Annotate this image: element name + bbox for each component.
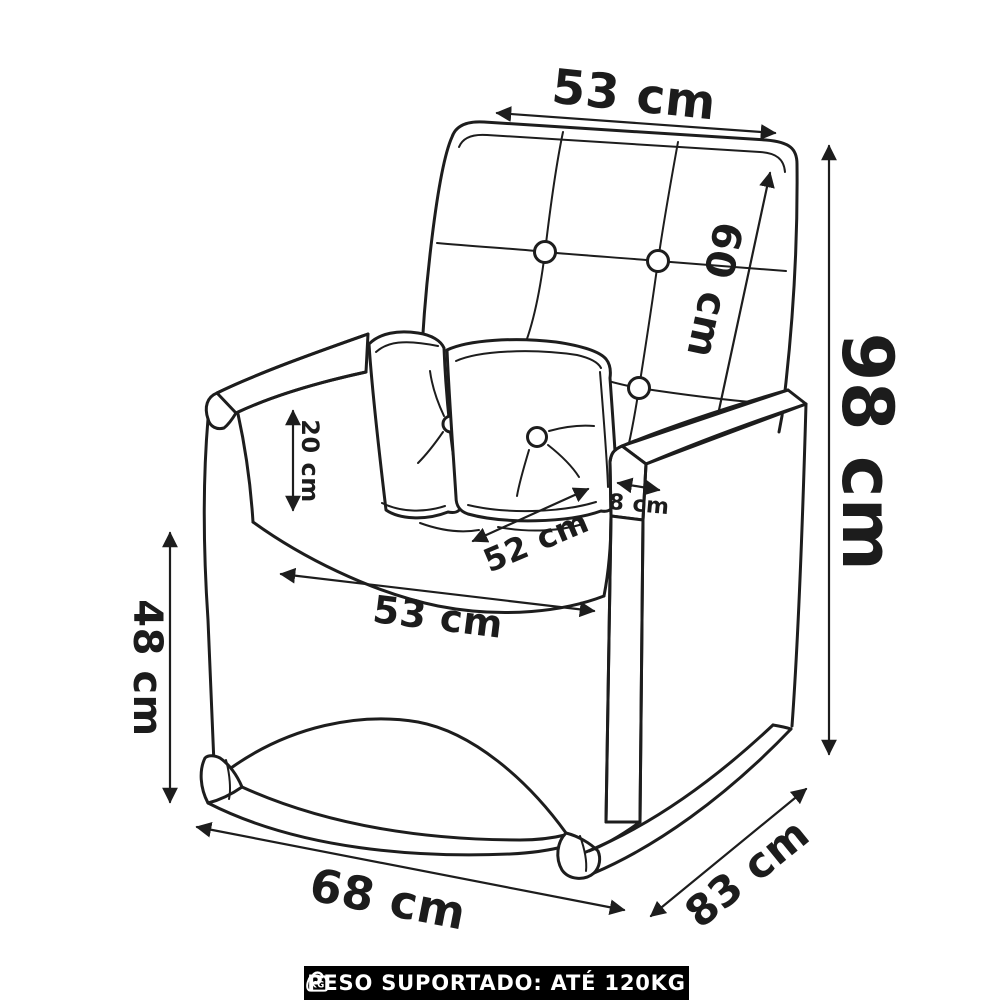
tufting-button bbox=[629, 378, 650, 399]
right-rocker-foot bbox=[558, 833, 600, 878]
total-height-label: 98 cm bbox=[826, 333, 908, 572]
backrest-width-label: 53 cm bbox=[549, 59, 718, 132]
armrest-thickness-label: 8 cm bbox=[608, 490, 671, 520]
weight-capacity-text: PESO SUPORTADO: ATÉ 120KG bbox=[307, 971, 686, 995]
dimension-diagram: 53 cm 60 cm 98 cm 20 cm 8 cm 52 cm 53 cm… bbox=[0, 0, 1000, 1000]
back-pillow-right bbox=[447, 340, 617, 521]
tufting-button bbox=[648, 251, 669, 272]
seat-fold bbox=[420, 523, 479, 531]
chair-right-edge bbox=[792, 404, 806, 726]
seat-front-height-label: 48 cm bbox=[124, 599, 170, 736]
backrest-seam bbox=[601, 379, 762, 403]
rocking-chair-drawing: 53 cm 60 cm 98 cm 20 cm 8 cm 52 cm 53 cm… bbox=[0, 0, 1000, 1000]
seat-width-label: 53 cm bbox=[370, 587, 505, 647]
kg-weight-icon: KG bbox=[304, 966, 331, 993]
weight-capacity-banner: KG PESO SUPORTADO: ATÉ 120KG bbox=[304, 966, 689, 1000]
base-width-label: 68 cm bbox=[305, 857, 470, 940]
backrest-seam bbox=[623, 142, 678, 468]
right-armrest bbox=[606, 390, 806, 822]
pillow-button bbox=[528, 428, 547, 447]
armrest-inner-height-label: 20 cm bbox=[296, 419, 324, 503]
kg-icon-label: KG bbox=[310, 980, 325, 990]
front-arch bbox=[231, 719, 566, 833]
tufting-button bbox=[535, 242, 556, 263]
total-depth-label: 83 cm bbox=[676, 809, 819, 938]
left-armrest bbox=[204, 334, 368, 764]
backrest-height-label: 60 cm bbox=[677, 218, 751, 362]
chair-left-edge bbox=[204, 419, 214, 764]
